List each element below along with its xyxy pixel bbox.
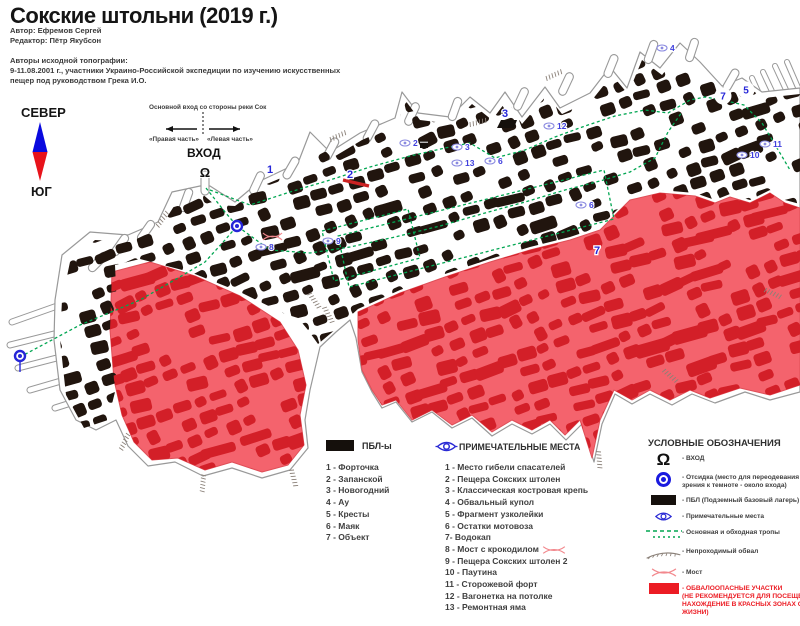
svg-text:13: 13	[465, 158, 475, 168]
legend-item: 1 - Место гибели спасателей	[445, 462, 588, 474]
svg-text:Ω: Ω	[200, 165, 210, 180]
legend-symbol-row: - Примечательные места	[645, 510, 800, 522]
svg-text:11: 11	[773, 139, 782, 149]
topo-line2: пещер под руководством Грека И.О.	[10, 76, 147, 85]
otsidka-icon	[656, 472, 671, 487]
legend-symbols-list: Ω- ВХОД- Отсидка (место для переодевания…	[645, 452, 800, 621]
svg-text:9: 9	[336, 236, 341, 246]
legend-symbol-label: - Основная и обходная тропы	[682, 526, 780, 541]
svg-text:2: 2	[413, 138, 418, 148]
map-marker-eye-4: 4	[657, 43, 675, 53]
legend-item: 12 - Вагонетка на потолке	[445, 591, 588, 603]
legend-item: 13 - Ремонтная яма	[445, 602, 588, 614]
legend-pbl-list: 1 - Форточка2 - Запанской3 - Новогодний4…	[326, 462, 389, 544]
places-eye-icon	[435, 440, 458, 458]
map-marker-bold-7: 7	[594, 245, 600, 257]
legend-symbol-label: - Мост	[682, 566, 702, 578]
legend-places-list: 1 - Место гибели спасателей2 - Пещера Со…	[445, 462, 588, 614]
legend-item: 5 - Кресты	[326, 509, 389, 521]
legend-pbl-title: ПБЛ-ы	[362, 441, 392, 451]
svg-text:10: 10	[750, 150, 760, 160]
svg-text:7: 7	[720, 92, 726, 103]
legend-symbol-label: - Непроходимый обвал	[682, 545, 758, 562]
legend-symbol-label: - ПБЛ (Подземный базовый лагерь)	[682, 494, 799, 505]
legend-symbol-label: - ВХОД	[682, 452, 705, 467]
svg-text:1: 1	[267, 164, 273, 176]
legend-symbol-row: - Непроходимый обвал	[645, 545, 800, 562]
legend-item: 8 - Мост с крокодилом	[445, 544, 588, 556]
pbl-swatch	[326, 440, 354, 451]
entrance-note: Основной вход со стороны реки Сок	[149, 104, 266, 111]
svg-text:6: 6	[589, 200, 594, 210]
svg-text:12: 12	[557, 121, 567, 131]
legend-item: 3 - Классическая костровая крепь	[445, 485, 588, 497]
legend-item: 4 - Ау	[326, 497, 389, 509]
legend-symbol-label: - Отсидка (место для переодевания и адап…	[682, 471, 800, 490]
compass-north-label: СЕВЕР	[21, 105, 66, 120]
map-marker-otsidka	[232, 221, 242, 231]
eye-icon	[653, 511, 674, 522]
legend-item: 7- Водокап	[445, 532, 588, 544]
legend-item: 4 - Обвальный купол	[445, 497, 588, 509]
legend-symbols-title: УСЛОВНЫЕ ОБОЗНАЧЕНИЯ	[648, 438, 781, 449]
compass-south-label: ЮГ	[31, 184, 52, 199]
legend-item: 10 - Паутина	[445, 567, 588, 579]
svg-text:3: 3	[502, 108, 508, 120]
trail-icon	[645, 527, 682, 541]
svg-text:8: 8	[269, 242, 274, 252]
legend-item: 1 - Форточка	[326, 462, 389, 474]
legend-item: 11 - Сторожевой форт	[445, 579, 588, 591]
legend-symbol-row: - Мост	[645, 566, 800, 578]
topo-line1: 9-11.08.2001 г., участники Украино-Росси…	[10, 66, 340, 75]
legend-symbol-row: - ОБВАЛООПАСНЫЕ УЧАСТКИ(НЕ РЕКОМЕНДУЕТСЯ…	[645, 582, 800, 618]
pbl-icon	[651, 495, 676, 505]
map-marker-bold-1: 1	[267, 164, 273, 176]
legend-item: 3 - Новогодний	[326, 485, 389, 497]
left-part-label: «Левая часть»	[207, 136, 253, 143]
legend-places-title: ПРИМЕЧАТЕЛЬНЫЕ МЕСТА	[459, 442, 580, 452]
editor-line: Редактор: Пётр Якубсон	[10, 36, 101, 45]
legend-symbol-row: - ПБЛ (Подземный базовый лагерь)	[645, 494, 800, 505]
entrance-label: ВХОД	[187, 146, 221, 160]
svg-text:3: 3	[465, 142, 470, 152]
legend-symbol-label: - Примечательные места	[682, 510, 764, 522]
legend-item: 2 - Пещера Сокских штолен	[445, 474, 588, 486]
legend-item: 6 - Остатки мотовоза	[445, 521, 588, 533]
legend-symbol-row: Ω- ВХОД	[645, 452, 800, 467]
legend-item: 7 - Объект	[326, 532, 389, 544]
entrance-icon: Ω	[657, 453, 671, 467]
legend-symbol-row: - Основная и обходная тропы	[645, 526, 800, 541]
collapse-icon	[645, 546, 682, 562]
svg-text:6: 6	[498, 156, 503, 166]
author-line: Автор: Ефремов Сергей	[10, 26, 101, 35]
bridge-icon	[650, 567, 678, 578]
map-marker-entrance-Ω: Ω	[200, 165, 210, 180]
svg-text:4: 4	[670, 43, 675, 53]
legend-item: 5 - Фрагмент узколейки	[445, 509, 588, 521]
map-marker-circle-5: 5	[738, 82, 755, 99]
map-marker-bold-3: 3	[502, 108, 508, 120]
map-marker-otsidka	[15, 351, 25, 361]
legend-item: 9 - Пещера Сокских штолен 2	[445, 556, 588, 568]
legend-item: 6 - Маяк	[326, 521, 389, 533]
danger-swatch	[649, 583, 679, 594]
topo-heading: Авторы исходной топографии:	[10, 56, 128, 65]
legend-symbol-label: - ОБВАЛООПАСНЫЕ УЧАСТКИ(НЕ РЕКОМЕНДУЕТСЯ…	[682, 582, 800, 618]
mine-map-page: Ω123775231213669841011 Сокские штольни (…	[0, 0, 800, 626]
legend-symbol-row: - Отсидка (место для переодевания и адап…	[645, 471, 800, 490]
legend-item: 2 - Запанской	[326, 474, 389, 486]
svg-text:5: 5	[743, 86, 749, 97]
map-marker-circle-7: 7	[715, 88, 732, 105]
svg-text:7: 7	[594, 245, 600, 257]
right-part-label: «Правая часть»	[149, 136, 199, 143]
map-marker-bold-2: 2	[347, 169, 353, 181]
svg-text:2: 2	[347, 169, 353, 181]
